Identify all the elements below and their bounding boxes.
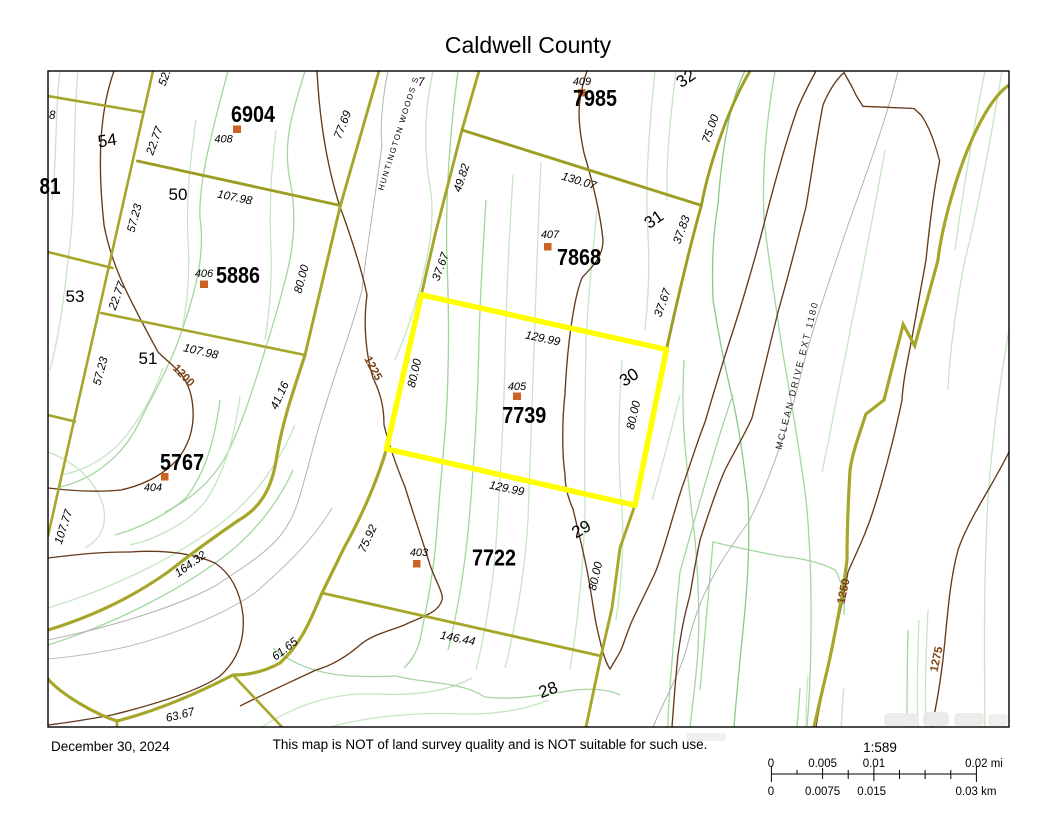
svg-text:December 30, 2024: December 30, 2024: [51, 739, 170, 754]
svg-text:22.77: 22.77: [106, 279, 129, 312]
svg-text:50: 50: [169, 185, 188, 204]
svg-text:Caldwell County: Caldwell County: [445, 32, 612, 58]
svg-text:0.005: 0.005: [808, 758, 837, 770]
svg-text:0.01: 0.01: [863, 758, 885, 770]
svg-text:31: 31: [641, 206, 667, 232]
svg-text:407: 407: [541, 229, 560, 241]
svg-text:37.67: 37.67: [430, 250, 452, 282]
svg-text:7: 7: [418, 76, 425, 89]
svg-text:7868: 7868: [557, 244, 601, 270]
svg-text:406: 406: [195, 268, 214, 280]
svg-text:403: 403: [410, 547, 429, 559]
svg-text:0.0075: 0.0075: [805, 786, 840, 798]
svg-text:54: 54: [97, 130, 118, 151]
svg-text:0.03 km: 0.03 km: [956, 786, 997, 798]
svg-text:146.44: 146.44: [439, 629, 477, 649]
svg-text:5886: 5886: [216, 262, 260, 288]
svg-text:107.98: 107.98: [182, 341, 220, 362]
svg-text:37.83: 37.83: [671, 213, 693, 245]
svg-text:53: 53: [66, 287, 85, 306]
svg-text:1225: 1225: [361, 354, 384, 383]
svg-text:MCLEAN DRIVE EXT 1180: MCLEAN DRIVE EXT 1180: [774, 300, 821, 451]
svg-text:37.67: 37.67: [652, 286, 674, 318]
svg-text:51: 51: [139, 349, 158, 368]
svg-text:77.69: 77.69: [331, 108, 354, 140]
svg-text:0: 0: [768, 758, 774, 770]
svg-text:0.02 mi: 0.02 mi: [965, 758, 1003, 770]
svg-text:408: 408: [214, 134, 233, 146]
svg-text:405: 405: [508, 381, 527, 393]
svg-text:57.23: 57.23: [125, 202, 145, 234]
svg-text:1250: 1250: [836, 578, 853, 606]
svg-text:6904: 6904: [231, 101, 275, 127]
svg-text:81: 81: [40, 173, 61, 199]
svg-text:80.00: 80.00: [586, 560, 605, 592]
svg-text:75.92: 75.92: [356, 522, 380, 554]
svg-text:29: 29: [568, 516, 594, 542]
svg-text:409: 409: [573, 76, 591, 88]
svg-text:HUNTINGTON WOODS S: HUNTINGTON WOODS S: [376, 75, 420, 192]
svg-text:130.07: 130.07: [560, 170, 598, 193]
svg-text:80.00: 80.00: [292, 263, 312, 295]
svg-text:80.00: 80.00: [624, 399, 643, 431]
svg-text:8: 8: [49, 109, 56, 122]
svg-text:107.98: 107.98: [216, 188, 254, 208]
svg-text:5767: 5767: [160, 449, 204, 475]
svg-text:57.23: 57.23: [91, 355, 111, 387]
svg-text:49.82: 49.82: [451, 162, 472, 194]
svg-text:1275: 1275: [929, 645, 946, 673]
svg-text:7739: 7739: [502, 402, 546, 428]
svg-text:28: 28: [536, 678, 560, 702]
svg-text:0: 0: [768, 786, 774, 798]
svg-text:0.015: 0.015: [857, 786, 886, 798]
svg-text:1:589: 1:589: [863, 740, 897, 755]
svg-text:22.77: 22.77: [143, 124, 166, 157]
svg-text:7722: 7722: [472, 545, 516, 571]
svg-text:7985: 7985: [573, 85, 617, 111]
svg-text:63.67: 63.67: [165, 705, 197, 725]
svg-text:This map is NOT of land survey: This map is NOT of land survey quality a…: [273, 737, 708, 752]
svg-text:107.77: 107.77: [52, 508, 75, 546]
svg-text:404: 404: [144, 482, 162, 494]
svg-text:32: 32: [673, 65, 699, 91]
svg-text:129.99: 129.99: [524, 329, 562, 349]
svg-text:1200: 1200: [170, 363, 196, 390]
